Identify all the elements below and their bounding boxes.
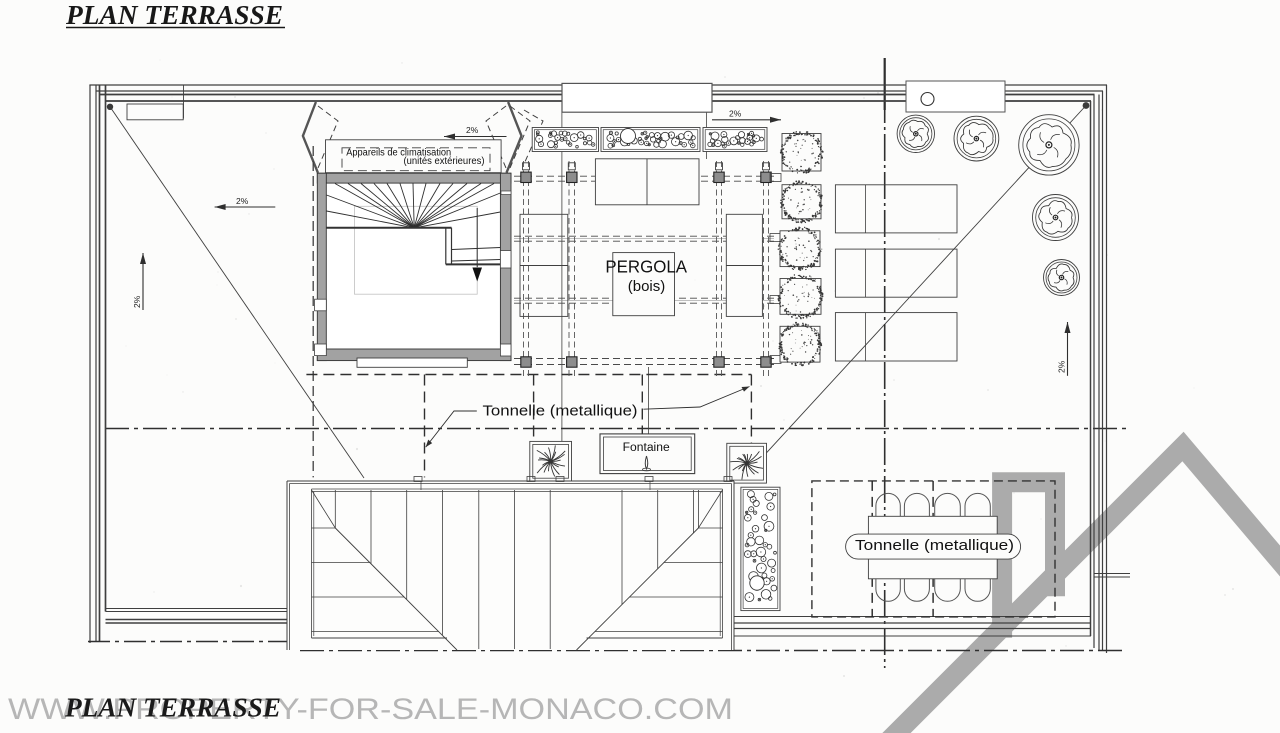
svg-text:2%: 2% (466, 125, 479, 135)
svg-text:Tonnelle (metallique): Tonnelle (metallique) (855, 537, 1014, 554)
svg-text:(unités extérieures): (unités extérieures) (404, 156, 485, 167)
svg-text:2%: 2% (132, 295, 142, 308)
svg-text:2%: 2% (1057, 360, 1067, 373)
svg-text:PLAN TERRASSE: PLAN TERRASSE (65, 0, 283, 30)
svg-text:Fontaine: Fontaine (623, 442, 670, 454)
svg-text:2%: 2% (729, 109, 742, 119)
svg-text:2%: 2% (236, 196, 249, 206)
svg-text:PLAN TERRASSE: PLAN TERRASSE (64, 693, 281, 723)
svg-text:PERGOLA: PERGOLA (605, 257, 687, 277)
svg-text:Tonnelle (metallique): Tonnelle (metallique) (483, 403, 638, 420)
svg-text:(bois): (bois) (628, 278, 666, 295)
